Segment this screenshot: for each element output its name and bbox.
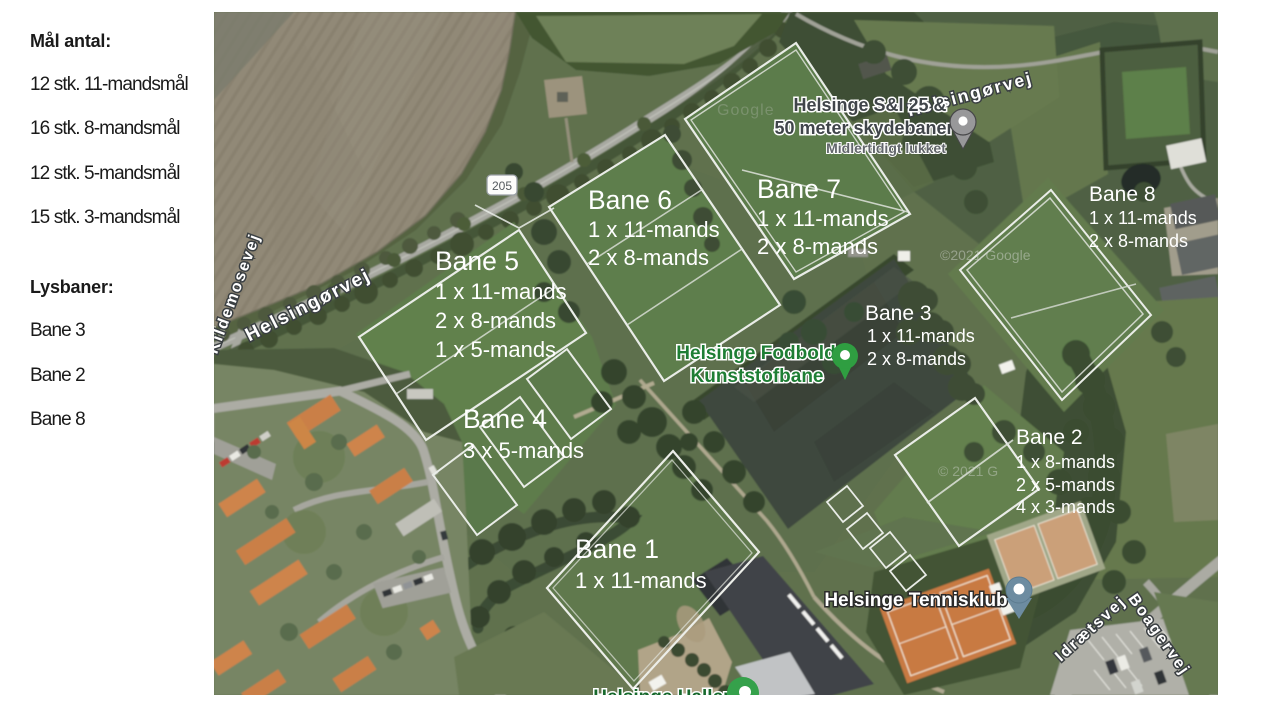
svg-text:Bane 5: Bane 5 <box>435 246 519 276</box>
svg-text:3 x 5-mands: 3 x 5-mands <box>463 438 584 463</box>
svg-text:1 x 11-mands: 1 x 11-mands <box>1089 208 1197 228</box>
svg-text:2 x 8-mands: 2 x 8-mands <box>1089 231 1188 251</box>
svg-text:Bane 8: Bane 8 <box>1089 183 1156 206</box>
svg-text:1 x 11-mands: 1 x 11-mands <box>435 279 567 304</box>
svg-text:1 x 8-mands: 1 x 8-mands <box>1016 452 1115 472</box>
svg-text:©2021 Google: ©2021 Google <box>940 247 1031 263</box>
svg-text:2 x 8-mands: 2 x 8-mands <box>435 308 556 333</box>
svg-text:© 2021 G: © 2021 G <box>938 463 998 479</box>
svg-text:Helsinge Fodbold: Helsinge Fodbold <box>676 343 835 364</box>
svg-text:Bane 6: Bane 6 <box>588 185 672 215</box>
svg-text:Helsingørvej: Helsingørvej <box>242 265 375 346</box>
svg-text:Bane 3: Bane 3 <box>865 302 932 325</box>
svg-text:Bane 4: Bane 4 <box>463 404 547 434</box>
svg-text:2 x 8-mands: 2 x 8-mands <box>588 245 709 270</box>
svg-text:Helsinge Hallen: Helsinge Hallen <box>593 687 735 695</box>
svg-text:205: 205 <box>492 179 512 193</box>
svg-text:1 x 11-mands: 1 x 11-mands <box>575 568 707 593</box>
svg-text:4 x 3-mands: 4 x 3-mands <box>1016 497 1115 517</box>
svg-text:Bane 2: Bane 2 <box>1016 426 1083 449</box>
svg-text:1 x 11-mands: 1 x 11-mands <box>757 206 889 231</box>
svg-text:Google: Google <box>717 102 775 119</box>
svg-text:1 x 11-mands: 1 x 11-mands <box>588 217 720 242</box>
svg-text:Helsinge Tennisklub: Helsinge Tennisklub <box>824 590 1007 611</box>
svg-text:50 meter skydebaner: 50 meter skydebaner <box>774 118 953 138</box>
svg-text:Bane 1: Bane 1 <box>575 534 659 564</box>
svg-text:Idrætsvej: Idrætsvej <box>1052 593 1130 665</box>
svg-text:Boagervej: Boagervej <box>1124 591 1193 679</box>
svg-text:Kunststofbane: Kunststofbane <box>691 366 824 387</box>
svg-text:Helsinge S&I 25 &: Helsinge S&I 25 & <box>793 95 946 115</box>
svg-text:2 x 5-mands: 2 x 5-mands <box>1016 475 1115 495</box>
svg-text:Midlertidigt lukket: Midlertidigt lukket <box>826 140 946 156</box>
svg-text:1 x 5-mands: 1 x 5-mands <box>435 337 556 362</box>
svg-text:2 x 8-mands: 2 x 8-mands <box>867 349 966 369</box>
svg-text:1 x 11-mands: 1 x 11-mands <box>867 326 975 346</box>
svg-text:Bane 7: Bane 7 <box>757 174 841 204</box>
svg-text:2 x 8-mands: 2 x 8-mands <box>757 234 878 259</box>
